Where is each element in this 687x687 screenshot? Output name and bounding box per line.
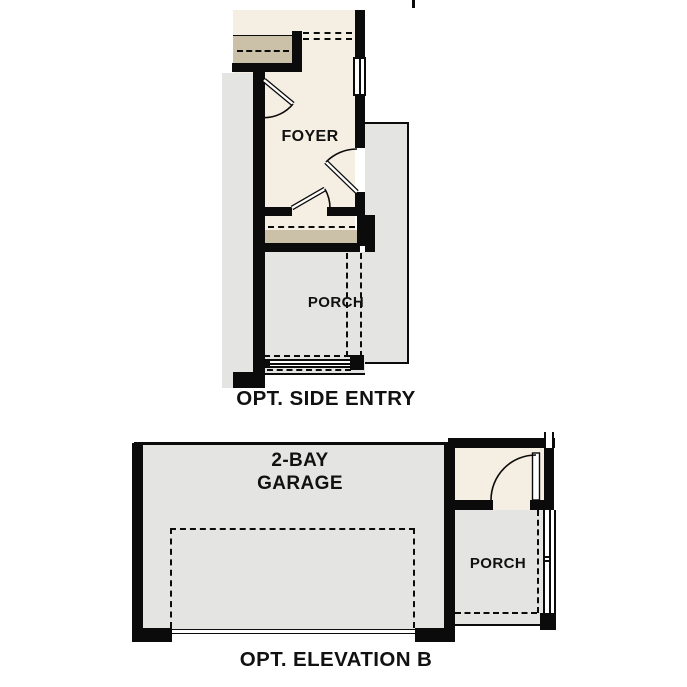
side-steps-rung-2 (545, 560, 549, 562)
floorplan-canvas: FOYER PORCH OPT. SIDE ENTRY (0, 0, 687, 687)
garage-top-edge-line (134, 442, 455, 445)
entry-bottom-wall (444, 500, 493, 510)
garage-label-line2: GARAGE (230, 472, 370, 495)
garage-left-wall (132, 443, 143, 628)
entry-door-hinge-wall (530, 500, 554, 510)
garage-door-overhead-dash (170, 528, 415, 628)
porch2-edge-dash (455, 612, 537, 614)
entry-window-jamb-left (544, 432, 546, 448)
plan-elevation-b: 2-BAY GARAGE PORCH OPT. ELEVATION B (0, 0, 687, 687)
porch2-roofline-dash (537, 510, 539, 613)
side-steps-line-3 (554, 510, 556, 613)
garage-door-threshold (172, 629, 415, 634)
garage-label: 2-BAY GARAGE (230, 449, 370, 495)
side-steps-rung-1 (545, 556, 549, 558)
porch-label-bottom-plan: PORCH (462, 555, 534, 572)
entry-window-jamb-right (552, 432, 554, 448)
garage-right-wall (444, 443, 455, 642)
caption-elevation-b: OPT. ELEVATION B (216, 648, 456, 672)
porch-column-bottom-plan (540, 613, 556, 630)
garage-left-footing (132, 628, 172, 642)
entry-top-wall (448, 438, 555, 448)
garage-label-line1: 2-BAY (230, 449, 370, 472)
